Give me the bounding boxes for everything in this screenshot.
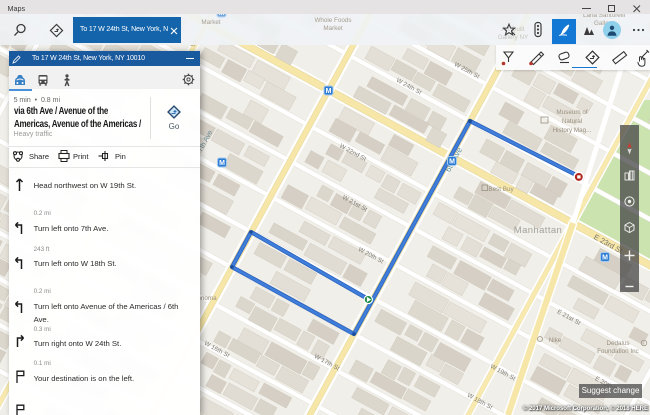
svg-text:M: M xyxy=(326,88,332,95)
svg-text:M: M xyxy=(602,255,608,262)
svg-text:Best Buy: Best Buy xyxy=(488,186,514,193)
svg-text:Museum of: Museum of xyxy=(556,109,587,116)
svg-text:M: M xyxy=(449,159,455,166)
svg-text:onoma: onoma xyxy=(197,295,217,302)
svg-text:Dedalus: Dedalus xyxy=(606,340,629,347)
svg-text:Nike: Nike xyxy=(549,337,562,344)
svg-text:Market: Market xyxy=(201,19,220,26)
svg-text:Natural: Natural xyxy=(562,118,582,125)
svg-text:Whole Foods: Whole Foods xyxy=(314,17,351,24)
svg-text:i: i xyxy=(644,341,645,346)
svg-text:History Mag...: History Mag... xyxy=(553,127,592,134)
svg-text:Market: Market xyxy=(323,25,342,32)
svg-text:Manhattan: Manhattan xyxy=(514,225,563,236)
svg-text:Foundation Inc: Foundation Inc xyxy=(597,348,639,355)
svg-text:M: M xyxy=(219,160,225,167)
